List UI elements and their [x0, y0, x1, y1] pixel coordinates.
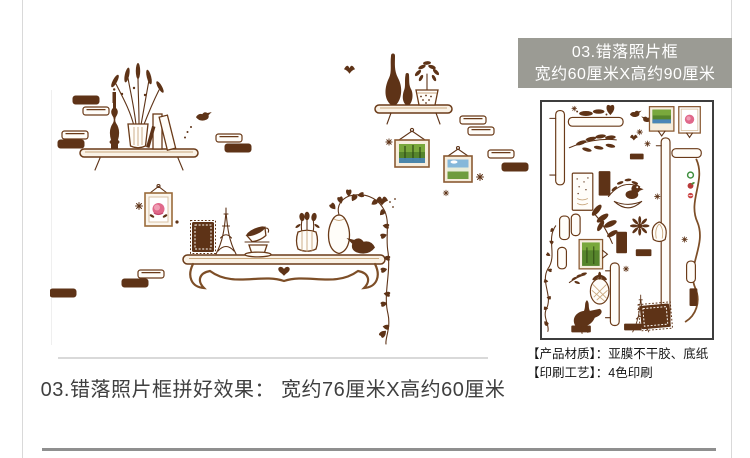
- potted-plant-icon: [414, 61, 440, 105]
- wall-shelf-main-icon: [183, 255, 385, 288]
- photo-frame-meadow: [444, 147, 472, 183]
- tall-vases-icon: [386, 54, 413, 106]
- left-page-rule: [22, 0, 23, 458]
- books-icon: [146, 114, 176, 150]
- lavender-sprig-icon: [569, 134, 616, 153]
- flower-vase-icon: [295, 212, 320, 252]
- vine-piece: [543, 226, 556, 332]
- sparkle-star-icon: [136, 203, 143, 210]
- sheet-frame-green-top: [649, 107, 673, 136]
- product-detail-section: 03.错落照片框 宽约60厘米X高约90厘米: [0, 0, 750, 458]
- candlestick-icon: [110, 88, 120, 149]
- butterfly-icon: [376, 197, 388, 206]
- section-divider: [42, 448, 716, 451]
- sheet-frame-green-mid: [579, 240, 607, 269]
- sticker-sheet-art: [542, 102, 712, 338]
- brick-decals: [50, 96, 528, 297]
- sheet-frame-pink-top: [679, 107, 700, 138]
- butterfly-icon: [630, 135, 638, 141]
- spec-printing: 【印刷工艺】：4色印刷: [527, 364, 708, 383]
- wall-shelf-top-right-icon: [375, 105, 452, 124]
- eiffel-tower-icon: [216, 208, 236, 254]
- leaf-sprig-icon: [569, 272, 587, 285]
- sheet-size: 宽约60厘米X高约90厘米: [518, 64, 732, 86]
- sparkle-star-icon: [637, 129, 642, 134]
- teacups-icon: [245, 224, 271, 257]
- pothos-vase-icon: [329, 189, 391, 344]
- sheet-plank-pieces: [550, 111, 701, 326]
- sticker-sheet: [540, 100, 714, 340]
- photo-frame-forest: [395, 128, 429, 167]
- stamp-frame-icon: [191, 221, 216, 254]
- spec-material: 【产品材质】：亚膜不干胶、底纸: [527, 345, 708, 364]
- sticker-sheet-header: 03.错落照片框 宽约60厘米X高约90厘米: [518, 38, 732, 88]
- leaf-cluster-piece: [590, 203, 618, 243]
- bird-on-shelf-icon: [347, 238, 376, 254]
- preview-illustration: [50, 50, 550, 350]
- fruit-decals: [688, 172, 696, 198]
- photo-frame-rose: [145, 185, 172, 227]
- stamp-frame-icon: [638, 302, 672, 331]
- speckled-frame-piece: [572, 173, 593, 210]
- sheet-title: 03.错落照片框: [518, 42, 732, 64]
- caption-divider: [58, 357, 488, 359]
- bird-on-branch-piece: [608, 178, 643, 208]
- product-specs: 【产品材质】：亚膜不干胶、底纸 【印刷工艺】：4色印刷: [527, 345, 708, 383]
- pineapple-icon: [590, 272, 609, 304]
- bird-icon: [630, 111, 642, 117]
- wall-shelf-top-left-icon: [80, 149, 198, 170]
- butterfly-icon: [344, 66, 355, 74]
- bird-icon: [196, 112, 212, 121]
- assembled-preview-art: [50, 50, 550, 350]
- preview-caption: 03.错落照片框拼好效果： 宽约76厘米X高约60厘米: [40, 373, 506, 402]
